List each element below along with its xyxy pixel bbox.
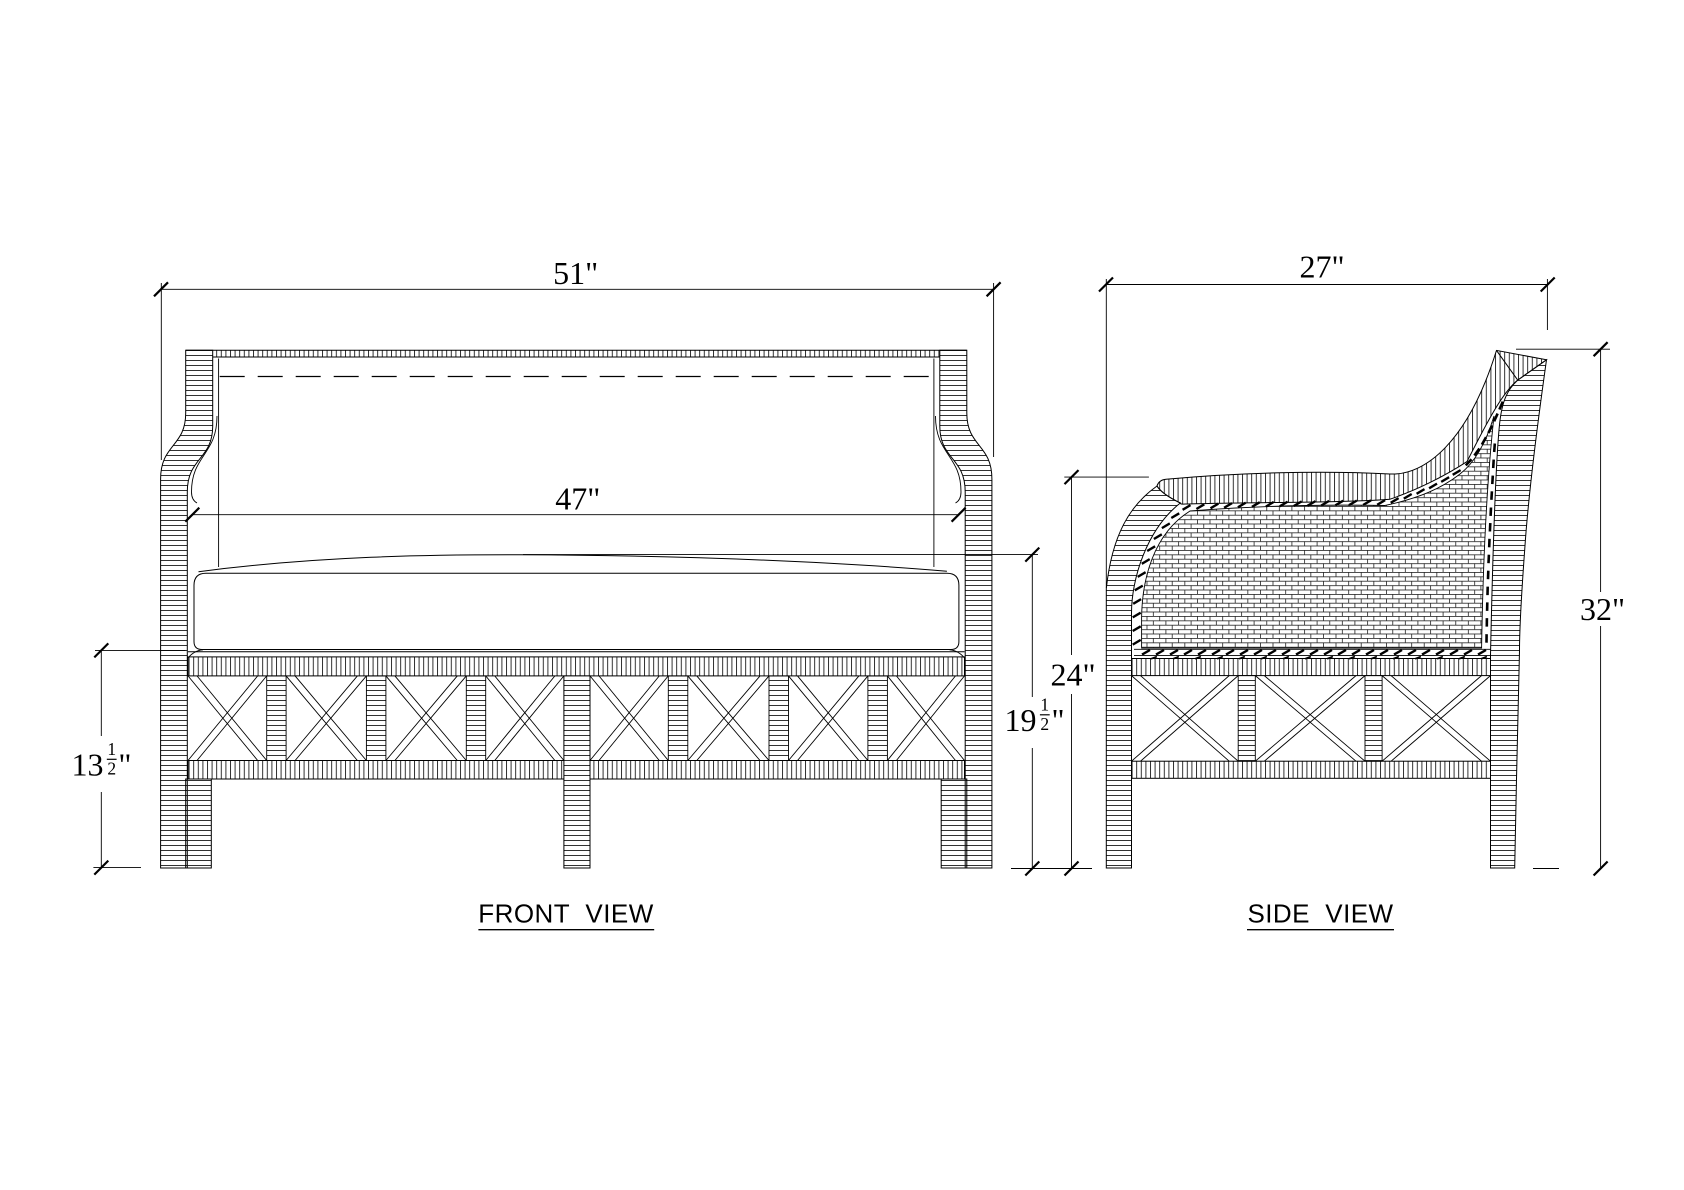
svg-text:47": 47" [555, 480, 600, 516]
svg-text:13: 13 [72, 747, 104, 783]
svg-text:2: 2 [107, 759, 116, 779]
svg-text:24": 24" [1051, 657, 1096, 693]
svg-text:SIDE VIEW: SIDE VIEW [1247, 899, 1393, 929]
svg-text:": " [118, 747, 131, 783]
svg-text:32": 32" [1580, 591, 1625, 627]
svg-text:1: 1 [1040, 695, 1049, 715]
svg-text:2: 2 [1040, 714, 1049, 734]
svg-text:51": 51" [553, 255, 598, 291]
svg-text:1: 1 [107, 739, 116, 759]
svg-text:": " [1052, 702, 1065, 738]
svg-text:19: 19 [1005, 702, 1037, 738]
svg-text:FRONT VIEW: FRONT VIEW [478, 899, 653, 929]
svg-text:27": 27" [1299, 249, 1344, 285]
